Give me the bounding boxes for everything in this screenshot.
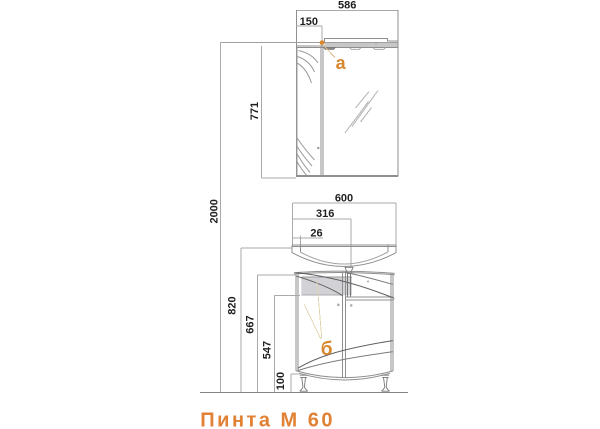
- svg-text:26: 26: [310, 227, 322, 239]
- svg-text:100: 100: [275, 372, 287, 390]
- svg-text:316: 316: [316, 208, 334, 220]
- svg-text:600: 600: [335, 192, 353, 204]
- svg-text:820: 820: [227, 296, 239, 314]
- svg-text:Пинта М 60: Пинта М 60: [200, 410, 335, 429]
- svg-text:547: 547: [262, 341, 274, 359]
- svg-text:б: б: [321, 339, 333, 360]
- svg-text:а: а: [336, 53, 347, 73]
- svg-text:771: 771: [249, 102, 261, 120]
- svg-text:667: 667: [244, 315, 256, 333]
- svg-text:2000: 2000: [208, 199, 220, 223]
